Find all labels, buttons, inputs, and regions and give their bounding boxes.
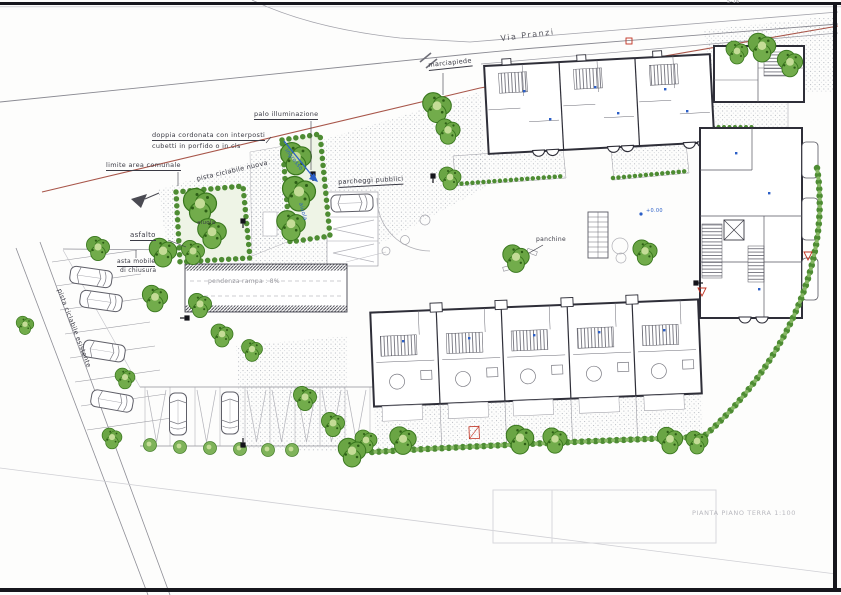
flowerbed-left-label: aiuola [197, 220, 215, 226]
lamp-post-label: palo illuminazione [254, 111, 318, 120]
asphalt-label: asfalto [130, 231, 156, 241]
ramp-slope-label: pendenza rampa : 8% [208, 279, 280, 286]
spot-elevation-label: +0.00 [646, 209, 663, 215]
north-building [484, 48, 715, 159]
sheet-title-label: PIANTA PIANO TERRA 1:100 [692, 510, 796, 517]
barrier-label-line2: di chiusura [120, 268, 156, 275]
east-building [700, 46, 818, 323]
curb-note-line1: doppia cordonata con interposti [152, 132, 265, 141]
row-houses [370, 292, 704, 450]
curb-note-line2: cubetti in porfido o in cls [152, 143, 241, 150]
sheet-ref-label: 5-16 [727, 0, 740, 6]
benches-label: panchine [536, 237, 566, 244]
site-plan-drawing [0, 0, 841, 595]
municipal-boundary-label: limite area comunale [106, 162, 181, 171]
site-plan-sheet: Via Pranzi marciapiede palo illuminazion… [0, 0, 841, 595]
external-stair [588, 212, 608, 258]
